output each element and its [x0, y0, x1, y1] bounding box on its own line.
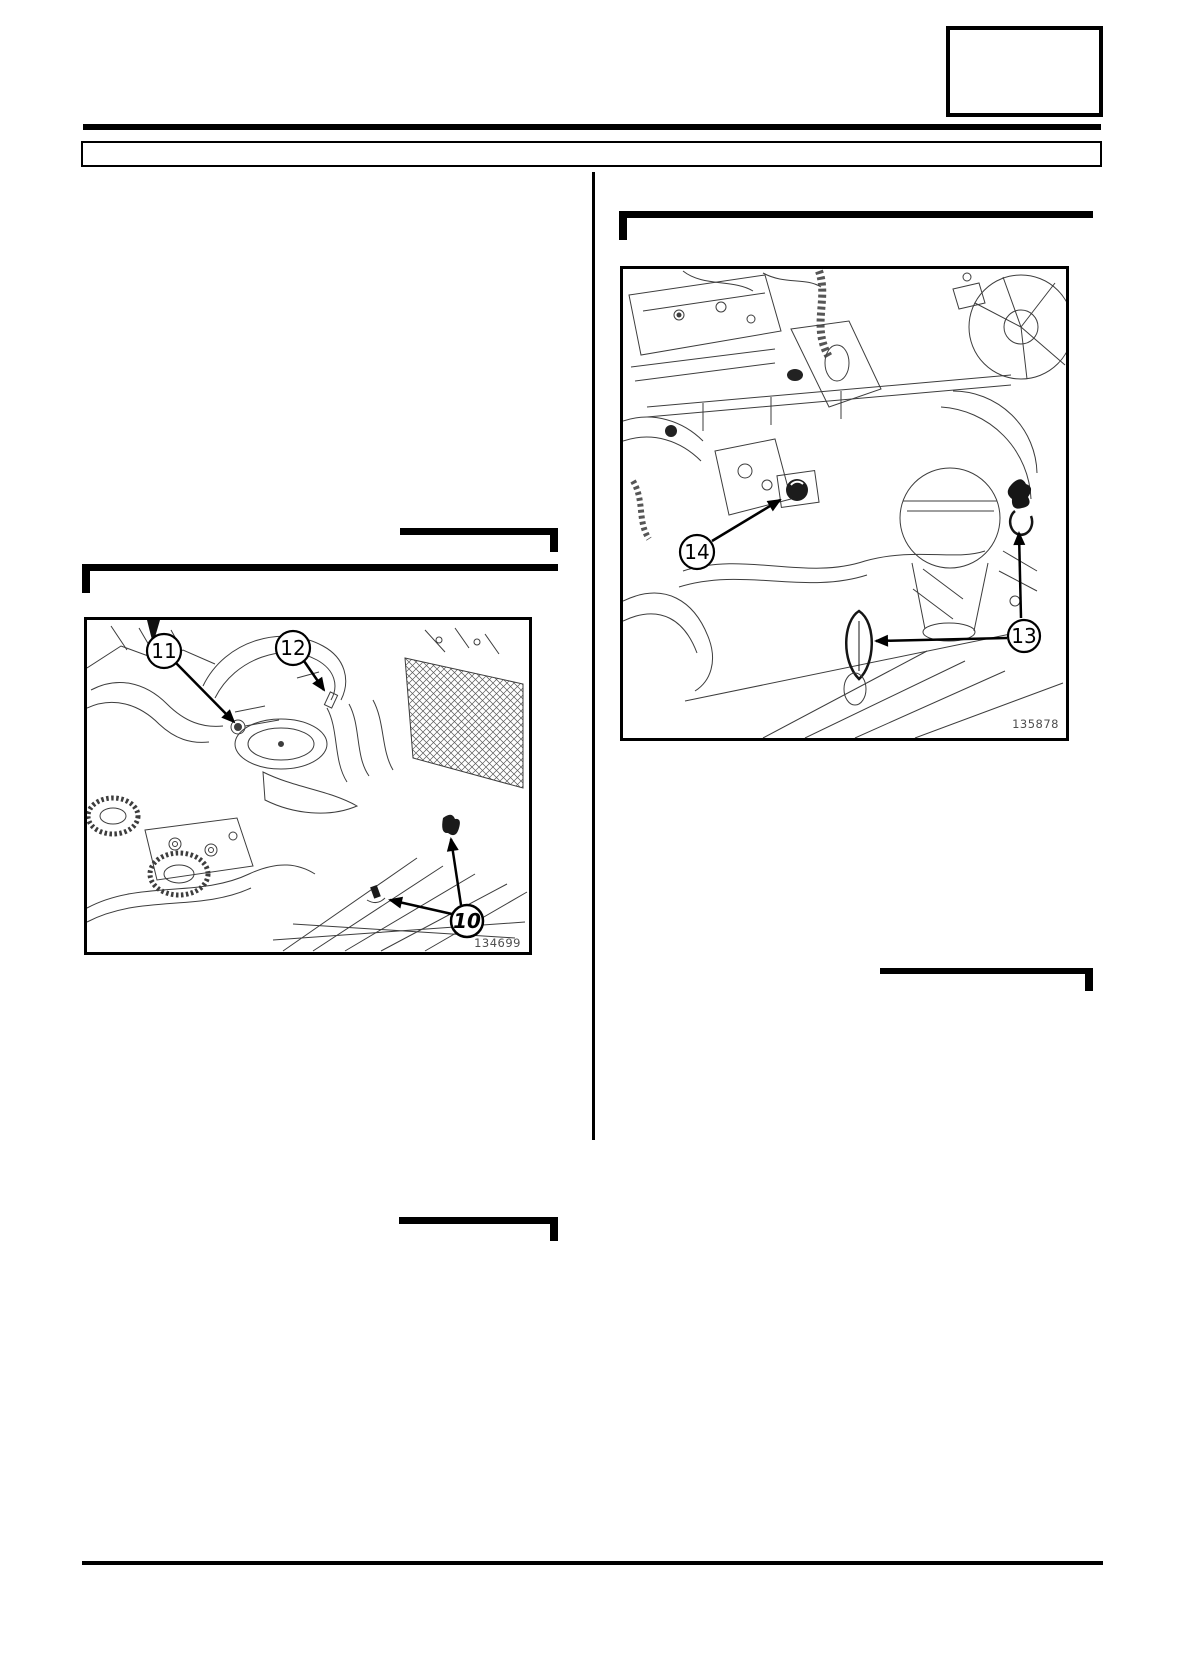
callout-arrow	[1019, 533, 1021, 618]
callout-11-label: 11	[151, 639, 176, 663]
callout-13-label: 13	[1011, 624, 1036, 648]
top-rule	[83, 124, 1101, 130]
figure-ref: 135878	[1012, 717, 1059, 731]
figure-right: 14 13 135878	[620, 266, 1069, 741]
page-number-box	[946, 26, 1103, 117]
figure-left: 11 12 10 134699	[84, 617, 532, 955]
callout-arrow	[390, 900, 452, 914]
callout-10-label: 10	[453, 909, 481, 933]
section-header-right	[619, 211, 1093, 240]
callout-14-label: 14	[684, 540, 709, 564]
section-rule-left-2	[399, 1217, 558, 1241]
engine-illustration: 14 13 135878	[623, 269, 1066, 738]
column-divider	[592, 172, 595, 1140]
callout-13: 13	[1008, 620, 1040, 652]
engine-illustration: 11 12 10 134699	[87, 620, 529, 952]
callout-arrow	[712, 500, 780, 541]
callout-14: 14	[680, 535, 714, 569]
callout-12: 12	[276, 631, 310, 665]
manual-page: 11 12 10 134699	[0, 0, 1186, 1678]
bottom-rule	[82, 1561, 1103, 1565]
section-rule-right-1	[880, 968, 1093, 991]
callout-12-label: 12	[280, 636, 305, 660]
callout-arrow	[451, 839, 461, 905]
callout-10: 10	[451, 905, 483, 937]
section-header-left	[82, 564, 558, 593]
section-rule-left-1	[400, 528, 558, 552]
header-bar	[81, 141, 1102, 167]
figure-ref: 134699	[474, 936, 521, 950]
callout-arrow	[876, 638, 1007, 641]
callout-arrow	[176, 663, 234, 722]
callout-11: 11	[147, 634, 181, 668]
